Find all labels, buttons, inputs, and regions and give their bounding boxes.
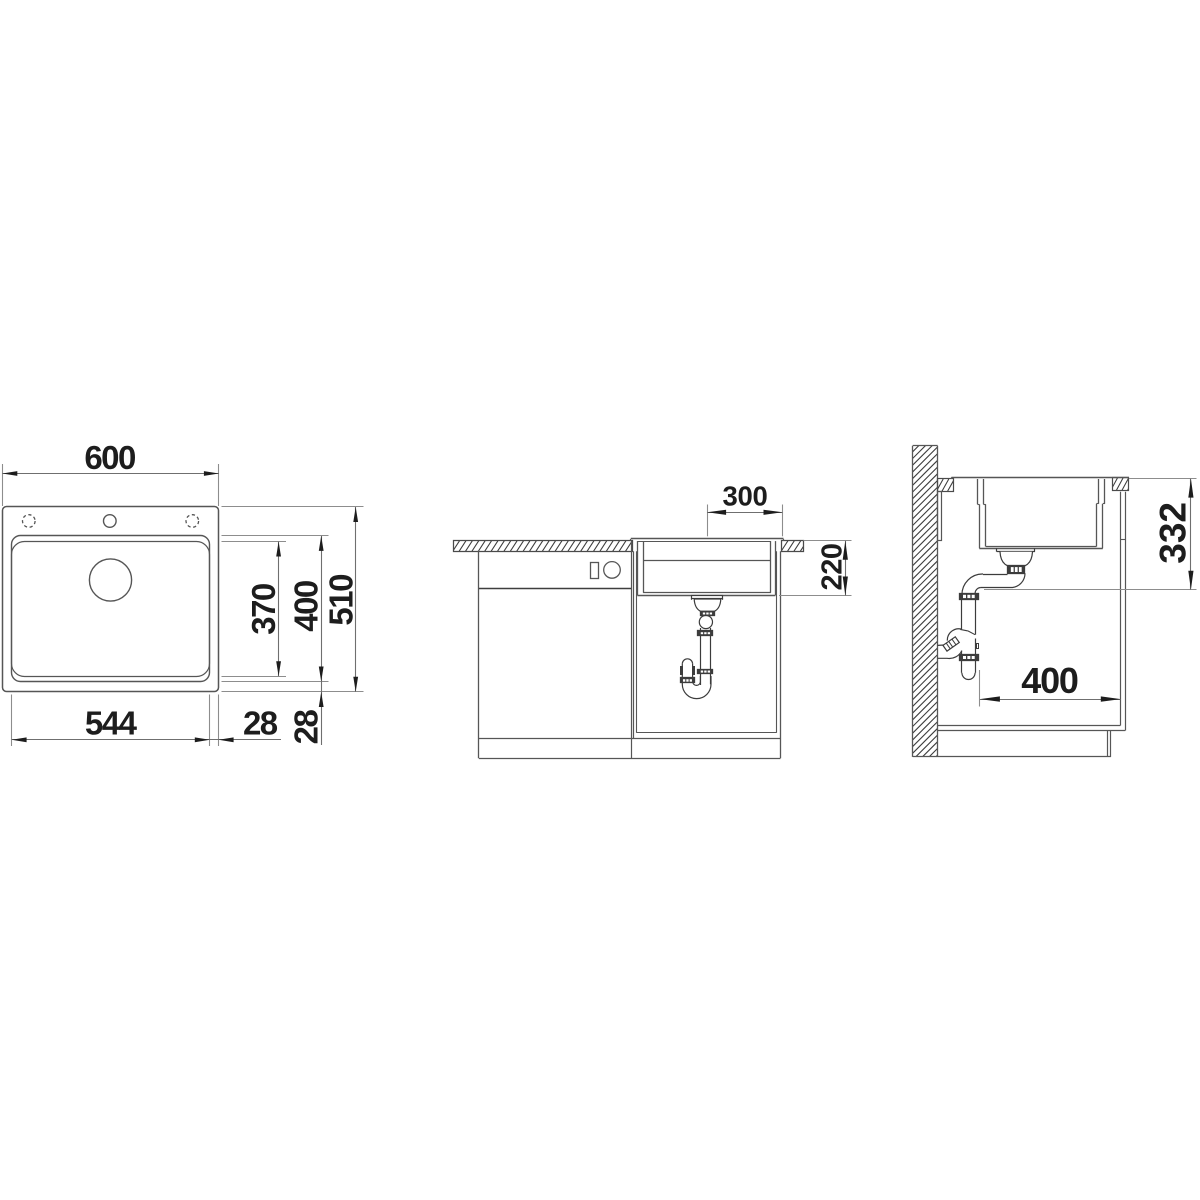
- svg-text:28: 28: [243, 705, 278, 742]
- svg-text:544: 544: [85, 705, 138, 742]
- svg-text:28: 28: [288, 710, 325, 745]
- svg-text:400: 400: [1021, 660, 1078, 701]
- svg-text:600: 600: [84, 439, 135, 476]
- svg-text:510: 510: [323, 575, 360, 626]
- svg-text:220: 220: [816, 544, 848, 591]
- svg-text:332: 332: [1153, 502, 1194, 564]
- svg-text:400: 400: [288, 581, 325, 632]
- svg-text:300: 300: [723, 481, 768, 512]
- svg-text:370: 370: [245, 584, 282, 635]
